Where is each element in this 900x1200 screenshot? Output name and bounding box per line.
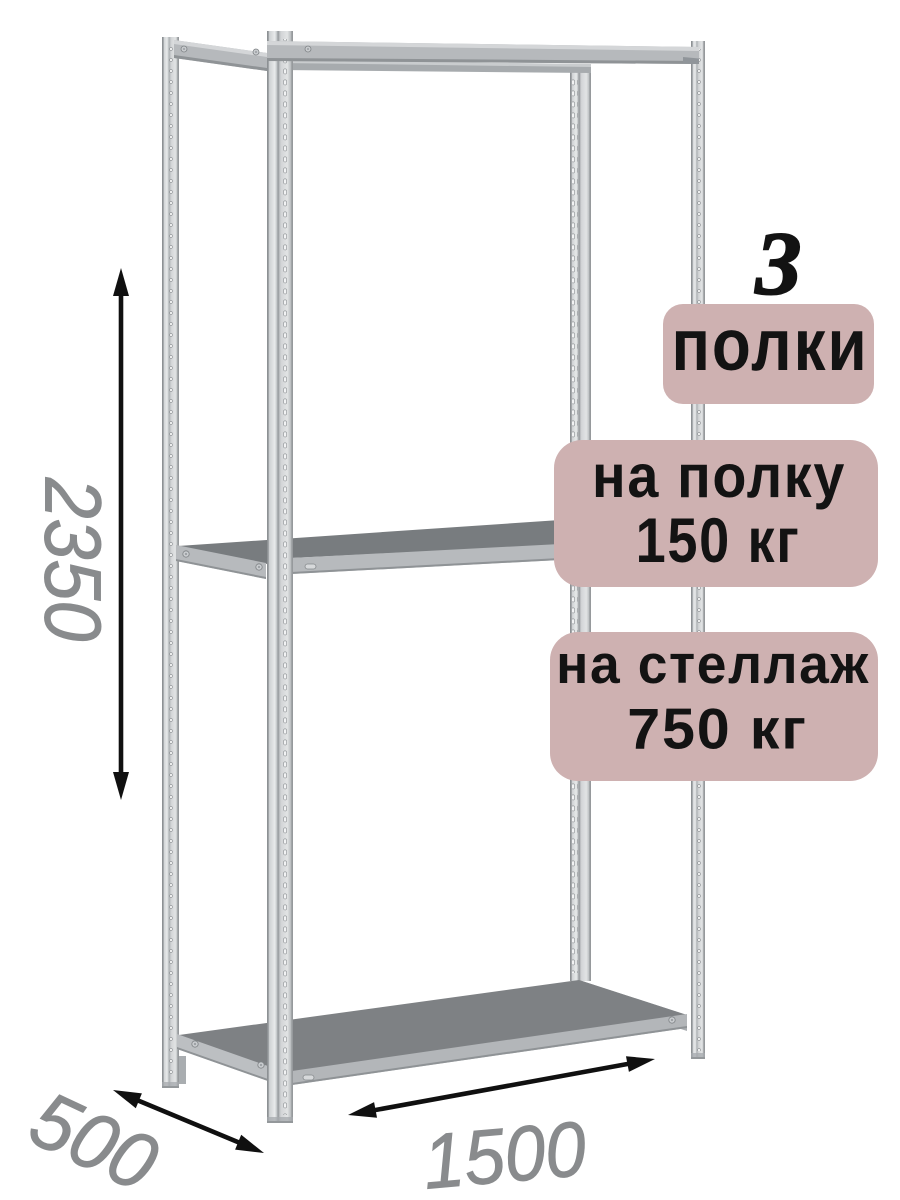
svg-text:750 кг: 750 кг — [627, 698, 807, 762]
svg-text:3: 3 — [754, 214, 801, 314]
svg-text:на стеллаж: на стеллаж — [556, 635, 870, 696]
svg-text:2350: 2350 — [28, 477, 118, 642]
svg-text:на полку: на полку — [592, 442, 846, 510]
svg-text:150 кг: 150 кг — [636, 506, 801, 576]
svg-text:1500: 1500 — [420, 1105, 590, 1200]
svg-text:полки: полки — [671, 304, 868, 386]
